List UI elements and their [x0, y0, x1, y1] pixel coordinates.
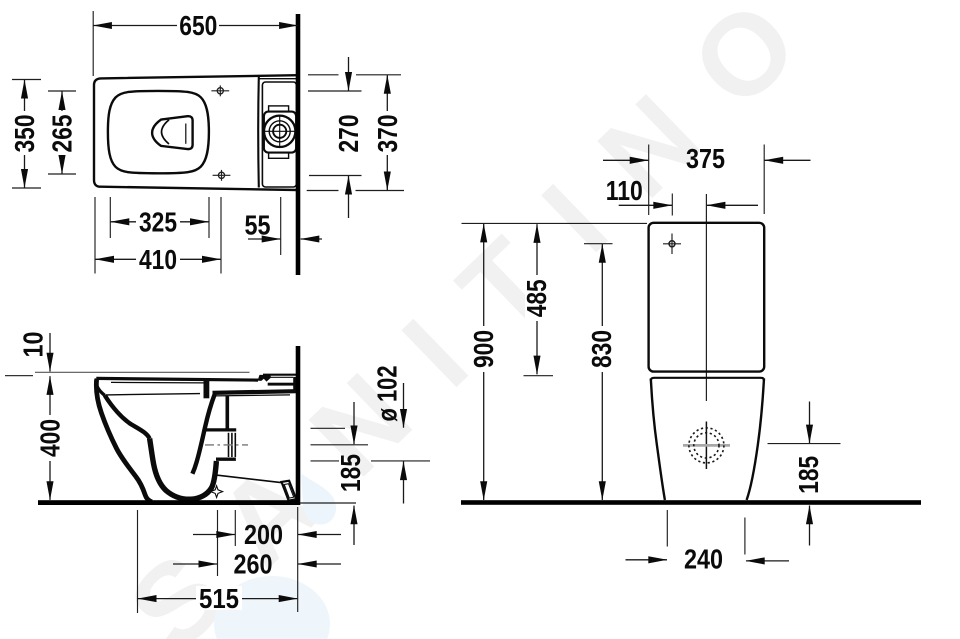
svg-text:240: 240	[684, 543, 723, 574]
svg-text:110: 110	[606, 175, 643, 206]
svg-text:55: 55	[245, 210, 271, 241]
svg-text:260: 260	[234, 549, 273, 580]
svg-text:370: 370	[372, 115, 403, 153]
svg-text:200: 200	[244, 519, 283, 550]
svg-text:10: 10	[18, 332, 49, 358]
svg-text:350: 350	[9, 115, 40, 153]
svg-text:270: 270	[333, 115, 364, 153]
svg-text:900: 900	[468, 330, 499, 368]
svg-text:410: 410	[139, 244, 177, 275]
svg-text:400: 400	[35, 419, 66, 457]
svg-text:515: 515	[199, 583, 239, 614]
svg-text:ø 102: ø 102	[372, 366, 403, 422]
svg-text:325: 325	[139, 206, 177, 237]
svg-text:650: 650	[179, 10, 217, 41]
svg-text:485: 485	[521, 279, 552, 317]
svg-text:265: 265	[47, 115, 78, 153]
svg-text:375: 375	[686, 143, 725, 174]
svg-text:185: 185	[335, 454, 366, 492]
svg-text:185: 185	[793, 456, 824, 494]
svg-text:830: 830	[586, 330, 617, 368]
